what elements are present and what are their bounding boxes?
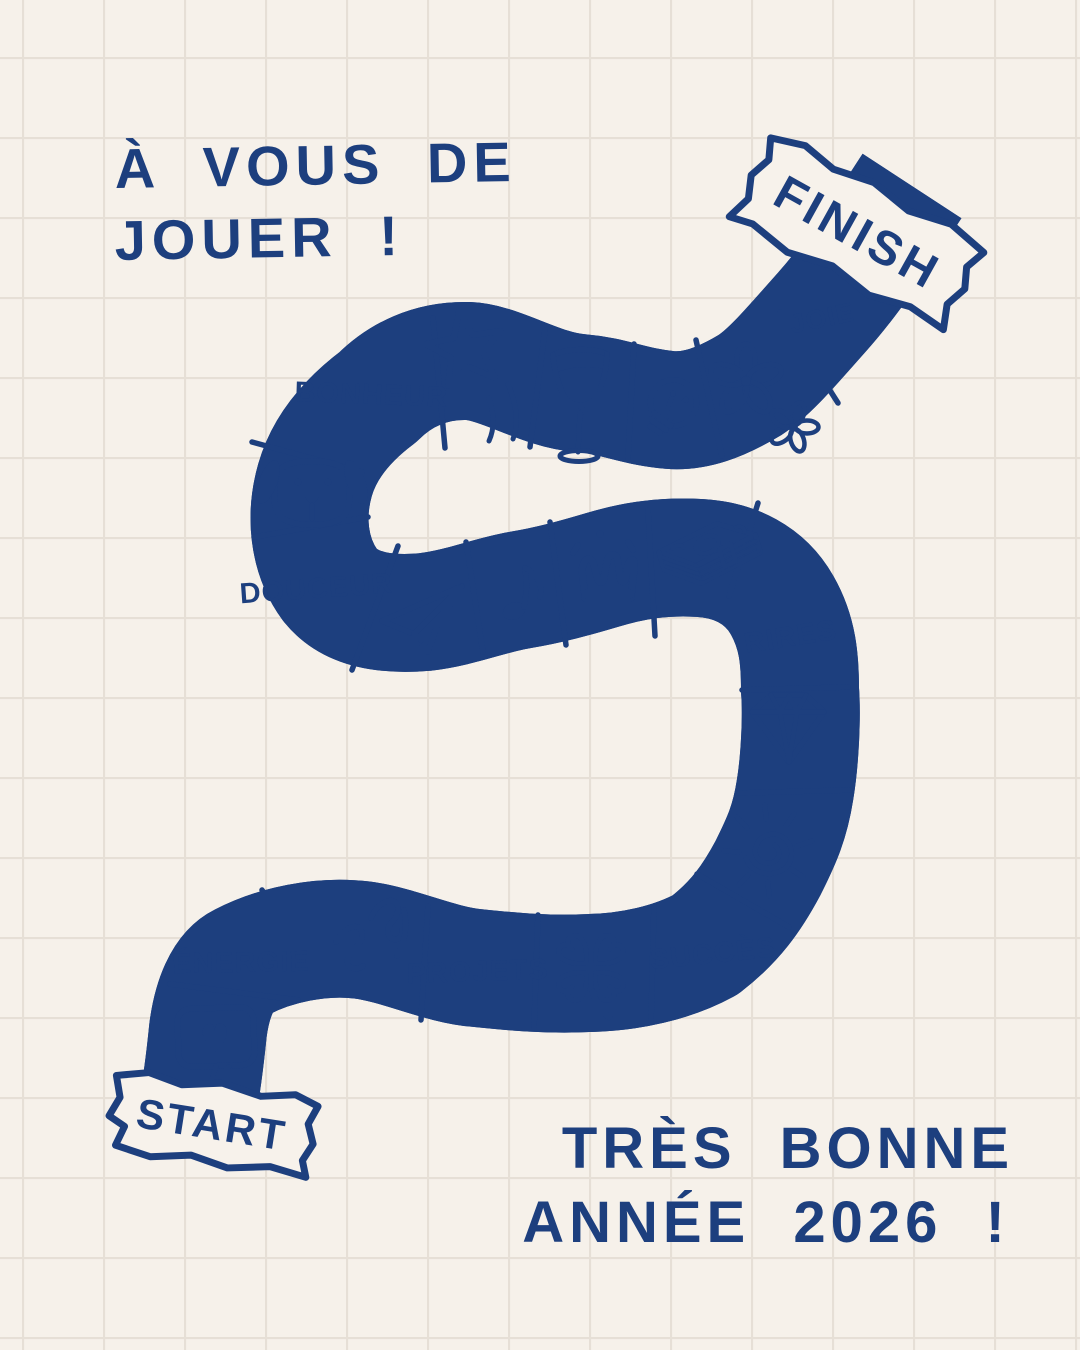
cell-label-projets: PROJETS [406,954,549,991]
headline-top-line1: À VOUS DE [114,130,517,200]
headline-bottom-line1: TRÈS BONNE [562,1116,1014,1181]
board-game-illustration: BONHEUR DOUCEUR JOIE RIRES SUCCÈS PROJET… [0,0,1080,1350]
cell-label-energie: ÉNERGIE [172,944,310,980]
headline-top-line2: JOUER ! [114,204,404,272]
headline-bottom-line2: ANNÉE 2026 ! [522,1190,1010,1255]
greeting-card: BONHEUR DOUCEUR JOIE RIRES SUCCÈS PROJET… [0,0,1080,1350]
cell-label-bonheur: BONHEUR [294,376,449,413]
divider-rires-diamond [742,687,848,690]
divider-diamond-sun [739,790,850,793]
